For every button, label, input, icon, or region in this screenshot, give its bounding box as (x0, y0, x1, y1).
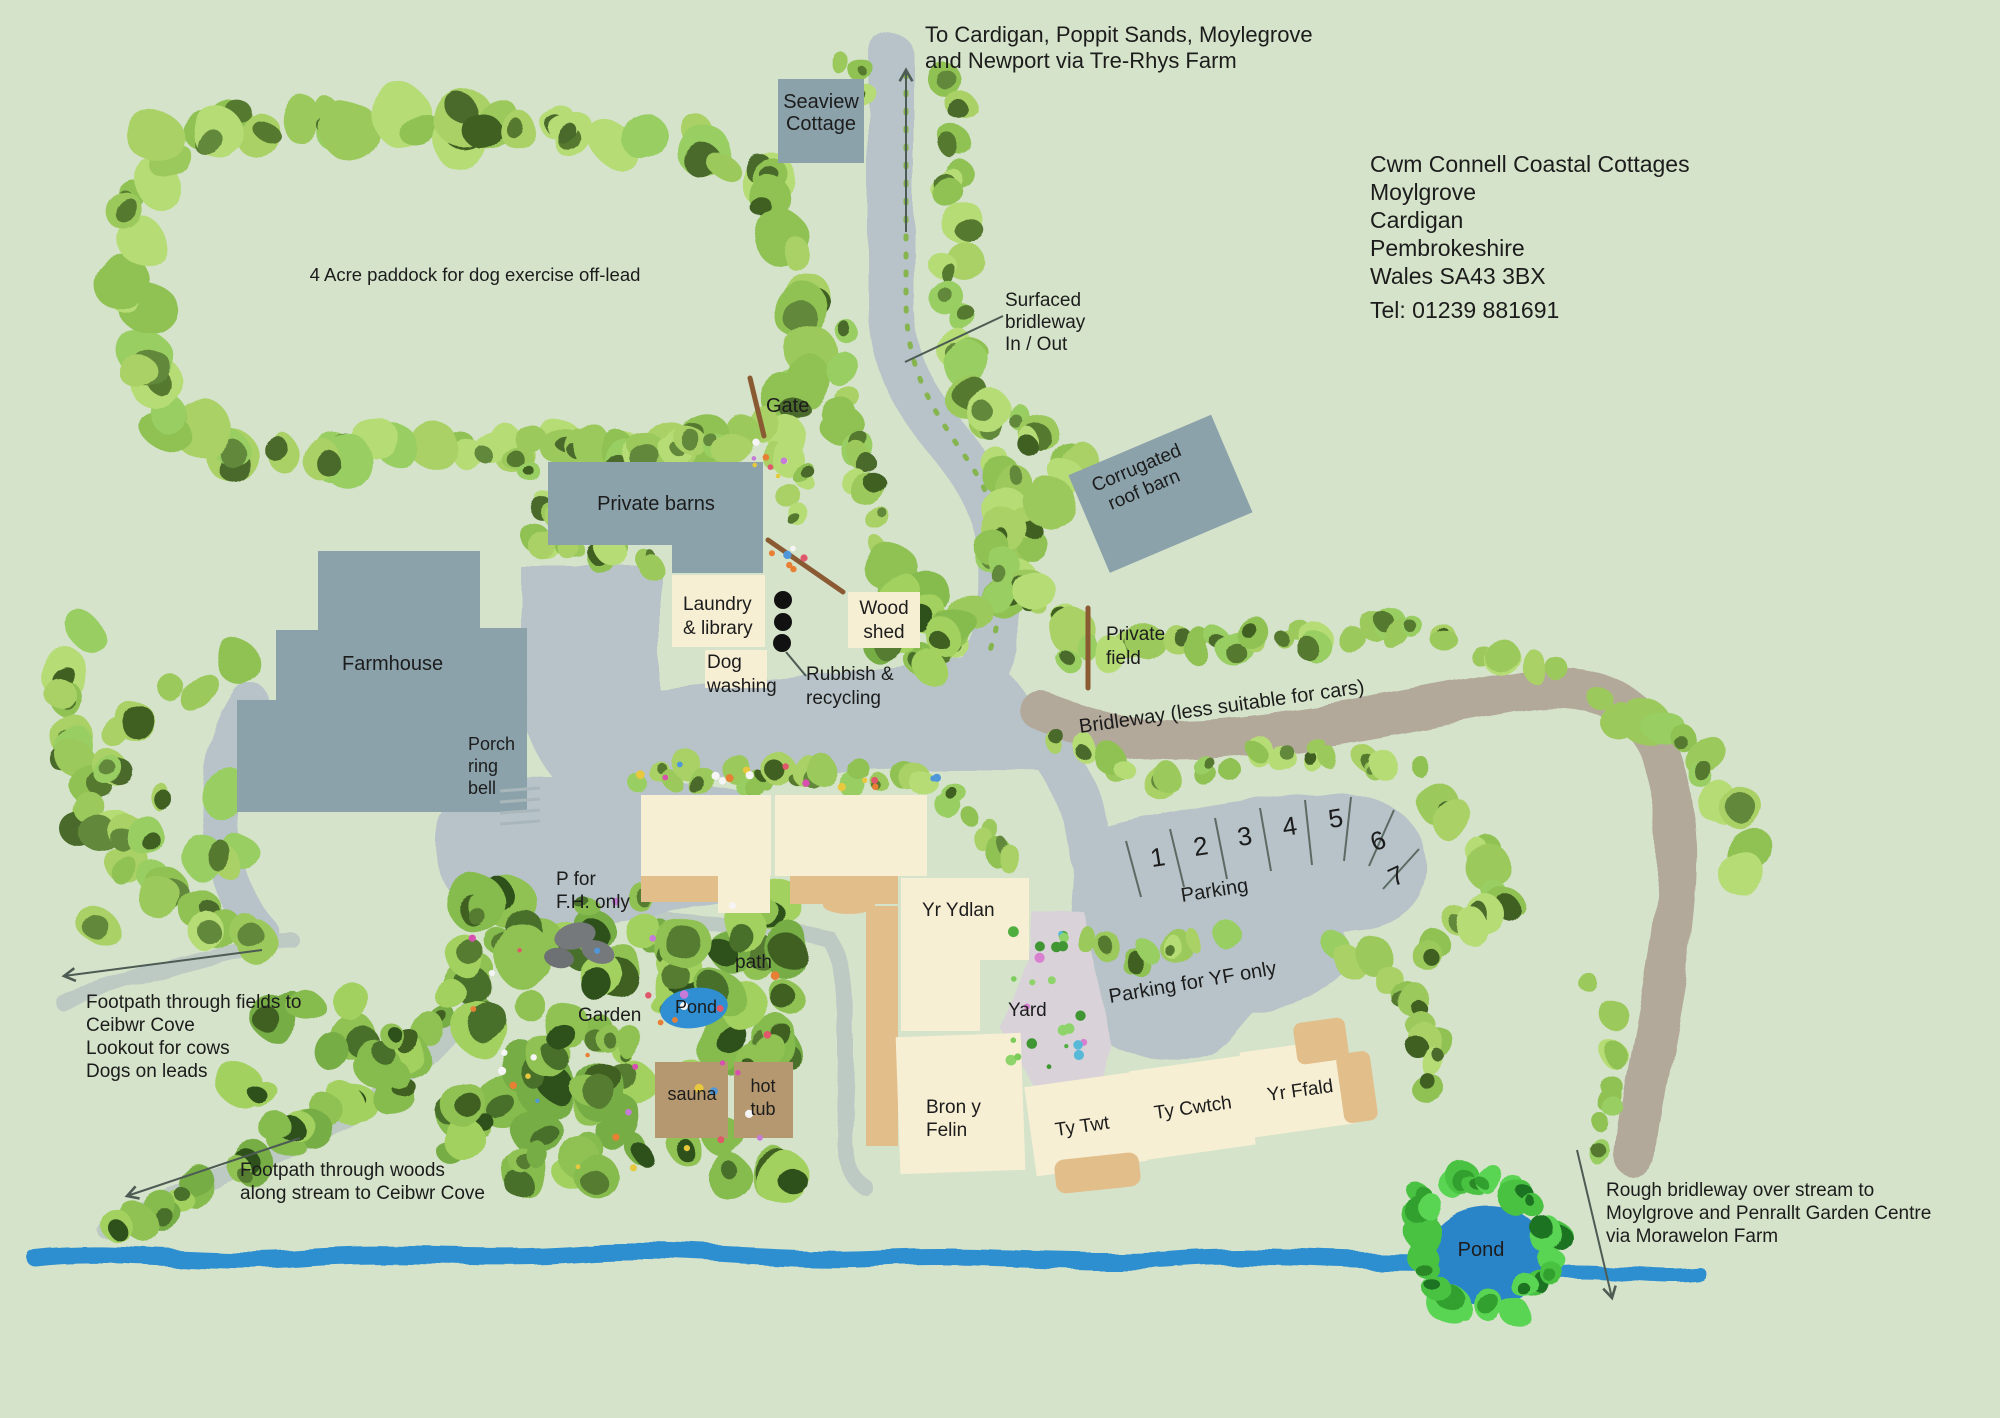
flower-dot (612, 1134, 619, 1141)
flower-dot (802, 779, 809, 786)
sauna-label: sauna (667, 1084, 717, 1104)
flower-dot (470, 1006, 476, 1012)
flower-dot (663, 775, 669, 781)
flower-dot (636, 770, 645, 779)
rubbish-bin (774, 591, 792, 609)
flower-dot (531, 1054, 537, 1060)
flower-dot (719, 777, 726, 784)
flower-dot (930, 776, 936, 782)
address-line: Wales SA43 3BX (1370, 263, 1546, 289)
farmhouse-label: Farmhouse (342, 653, 443, 675)
flower-dot (790, 566, 796, 572)
laundry-label: & library (683, 618, 753, 639)
yard-speckle (1064, 1044, 1068, 1048)
surfaced-bridleway-label: Surfaced (1005, 290, 1081, 311)
wood-shed-label: Wood (859, 598, 908, 619)
rubbish-label: recycling (806, 688, 881, 709)
flower-dot (501, 1050, 507, 1056)
flower-dot (718, 1136, 725, 1143)
flower-dot (763, 454, 770, 461)
seaview-label: Cottage (786, 113, 856, 135)
flower-dot (838, 783, 846, 791)
flower-dot (729, 902, 736, 909)
flower-dot (790, 546, 796, 552)
flower-dot (649, 935, 656, 942)
yard-speckle (1011, 1037, 1017, 1043)
path-label: path (735, 952, 772, 973)
wood-shed-label: shed (863, 622, 904, 643)
flower-dot (771, 971, 780, 980)
flower-dot (498, 1067, 506, 1075)
flower-dot (684, 1145, 690, 1151)
yard-speckle (1073, 1040, 1083, 1050)
yard-speckle (1047, 1064, 1052, 1069)
woods-footpath-label: along stream to Ceibwr Cove (240, 1183, 485, 1204)
rough-bridleway-label: Moylgrove and Penrallt Garden Centre (1606, 1203, 1931, 1224)
bron-y-felin-label: Felin (926, 1120, 967, 1141)
dog-washing-label: washing (706, 676, 777, 697)
private-barns-label: Private barns (597, 493, 715, 515)
flower-dot (764, 1031, 772, 1039)
flower-dot (872, 784, 878, 790)
address-line: Moylgrove (1370, 179, 1476, 205)
flower-dot (535, 1099, 539, 1103)
rough-bridleway-label: via Morawelon Farm (1606, 1226, 1778, 1247)
yard-speckle (1075, 1011, 1085, 1021)
private-field-label: field (1106, 648, 1141, 669)
paddock-label: 4 Acre paddock for dog exercise off-lead (310, 264, 641, 285)
flower-dot (752, 463, 757, 468)
flower-dot (781, 458, 788, 465)
laundry-label: Laundry (683, 594, 752, 615)
yard-speckle (1008, 926, 1019, 937)
flower-dot (783, 551, 791, 559)
gate-label: Gate (766, 395, 809, 417)
stream-east (1548, 1270, 1700, 1275)
destination-note: and Newport via Tre-Rhys Farm (925, 48, 1237, 73)
phone-number: Tel: 01239 881691 (1370, 297, 1559, 323)
flower-dot (630, 1164, 637, 1171)
flower-dot (871, 777, 878, 784)
flower-dot (672, 1017, 678, 1023)
rubbish-bin (774, 613, 792, 631)
address-line: Cardigan (1370, 207, 1463, 233)
address-line: Pembrokeshire (1370, 235, 1525, 261)
flower-dot (776, 474, 781, 479)
dog-washing-label: Dog (707, 652, 742, 673)
bron-y-felin-label: Bron y (926, 1097, 981, 1118)
flower-dot (757, 1135, 763, 1141)
yard-speckle (1074, 1050, 1084, 1060)
flower-dot (645, 992, 651, 998)
porch-label: ring (468, 756, 498, 776)
flower-dot (517, 948, 521, 952)
fields-footpath-label: Dogs on leads (86, 1061, 207, 1082)
fields-footpath-label: Footpath through fields to (86, 992, 301, 1013)
stream (35, 1252, 1432, 1261)
seaview-label: Seaview (783, 91, 859, 113)
hot-tub-label: hot (750, 1076, 775, 1096)
fields-footpath-label: Ceibwr Cove (86, 1015, 195, 1036)
flower-dot (594, 948, 600, 954)
flower-dot (862, 778, 867, 783)
private-field-label: Private (1106, 624, 1165, 645)
yard-speckle (1014, 1053, 1021, 1060)
flower-dot (625, 1109, 632, 1116)
yard-speckle (1058, 941, 1068, 951)
site-map: To Cardigan, Poppit Sands, Moylegrove an… (0, 0, 2000, 1418)
hot-tub-label: tub (750, 1099, 775, 1119)
surfaced-bridleway-label: In / Out (1005, 334, 1068, 355)
fron-haul-annex (718, 876, 770, 913)
flower-dot (800, 554, 807, 561)
yard-speckle (1048, 976, 1056, 984)
yard-speckle (1029, 979, 1035, 985)
rubbish-label: Rubbish & (806, 664, 894, 685)
ger-y-llyn-step (823, 896, 875, 914)
yard-speckle (1035, 953, 1045, 963)
garden-pond-label: Pond (675, 997, 717, 1017)
yard-speckle (1064, 1023, 1075, 1034)
flower-dot (752, 439, 759, 446)
flower-dot (769, 550, 775, 556)
flower-dot (712, 772, 720, 780)
flower-dot (576, 1164, 581, 1169)
destination-note: To Cardigan, Poppit Sands, Moylegrove (925, 22, 1313, 47)
flower-dot (720, 1060, 725, 1065)
surfaced-bridleway-label: bridleway (1005, 312, 1086, 333)
barn-yard (520, 566, 660, 712)
farmhouse-parking-label: P for (556, 869, 596, 890)
flower-dot (735, 1070, 740, 1075)
flower-dot (726, 774, 734, 782)
fields-footpath-label: Lookout for cows (86, 1038, 230, 1059)
main-pond-label: Pond (1458, 1239, 1505, 1261)
fron-haul-patio (641, 876, 718, 902)
woods-footpath-label: Footpath through woods (240, 1160, 445, 1181)
yard-label: Yard (1008, 1000, 1047, 1021)
porch-label: Porch (468, 734, 515, 754)
yard-speckle (1035, 941, 1045, 951)
flower-dot (525, 1073, 531, 1079)
flower-dot (746, 771, 754, 779)
flower-dot (717, 1005, 724, 1012)
yard-speckle (1011, 976, 1017, 982)
tan-path (866, 906, 898, 1146)
flower-dot (782, 763, 788, 769)
address-line: Cwm Connell Coastal Cottages (1370, 151, 1690, 177)
rough-bridleway-label: Rough bridleway over stream to (1606, 1180, 1874, 1201)
flower-dot (752, 456, 757, 461)
flower-dot (658, 1020, 664, 1026)
flower-dot (632, 1064, 638, 1070)
flower-dot (510, 1082, 517, 1089)
ger-y-llyn-building (775, 795, 927, 876)
fron-haul-building (641, 795, 771, 876)
yard-speckle (1027, 1038, 1038, 1049)
flower-dot (489, 970, 495, 976)
flower-dot (677, 762, 683, 768)
flower-dot (768, 464, 774, 470)
farmhouse-parking-label: F.H. only (556, 892, 630, 913)
garden-label: Garden (578, 1005, 641, 1026)
porch-label: bell (468, 778, 496, 798)
rubbish-bin (773, 634, 791, 652)
flower-dot (469, 935, 476, 942)
flower-dot (585, 1053, 589, 1057)
yr-ydlan-label: Yr Ydlan (922, 900, 995, 921)
